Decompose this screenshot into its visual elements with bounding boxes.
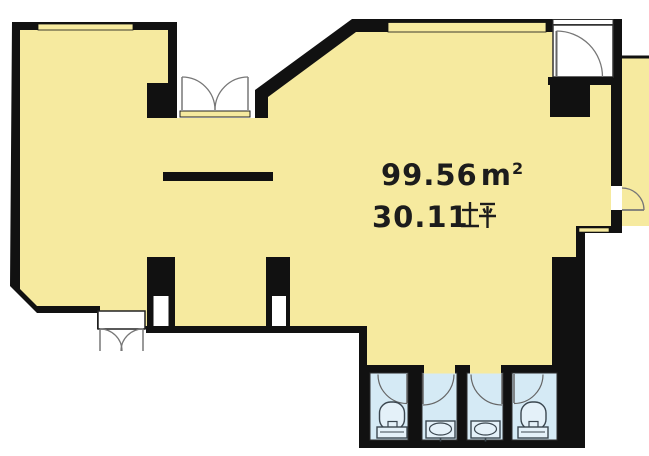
service-niche-2 bbox=[271, 295, 287, 327]
window-top-right bbox=[388, 23, 546, 33]
entrance-pillar bbox=[550, 84, 590, 117]
entrance-sill-wall bbox=[548, 77, 613, 85]
door-sill-top bbox=[180, 111, 250, 117]
counter-line bbox=[163, 172, 273, 181]
stall-opening-3 bbox=[470, 365, 501, 374]
sink-icon-1 bbox=[426, 421, 455, 442]
window-top-left bbox=[38, 24, 133, 30]
balcony-strip bbox=[622, 56, 649, 227]
entrance-threshold bbox=[553, 20, 613, 25]
toilet-icon-1 bbox=[377, 402, 407, 438]
balcony-top-wall bbox=[622, 56, 649, 59]
window-right-step bbox=[579, 228, 609, 232]
door-opening bbox=[611, 186, 622, 210]
toilet-icon-2 bbox=[518, 402, 548, 438]
entrance-alcove bbox=[553, 25, 613, 77]
floor-plan-svg: 99.56m2 30.11 bbox=[0, 0, 649, 456]
stall-opening-2 bbox=[424, 365, 455, 374]
sink-icon-2 bbox=[471, 421, 500, 442]
door-alcove bbox=[98, 311, 145, 329]
area-sqm-label: 99.56m2 bbox=[381, 158, 524, 192]
balcony-floor bbox=[622, 58, 649, 226]
pillar-right bbox=[266, 257, 290, 330]
service-niche-1 bbox=[153, 295, 170, 327]
floor-plan: 99.56m2 30.11 bbox=[0, 0, 649, 456]
pillar-left bbox=[147, 257, 175, 330]
area-tsubo-value: 30.11 bbox=[372, 200, 469, 234]
